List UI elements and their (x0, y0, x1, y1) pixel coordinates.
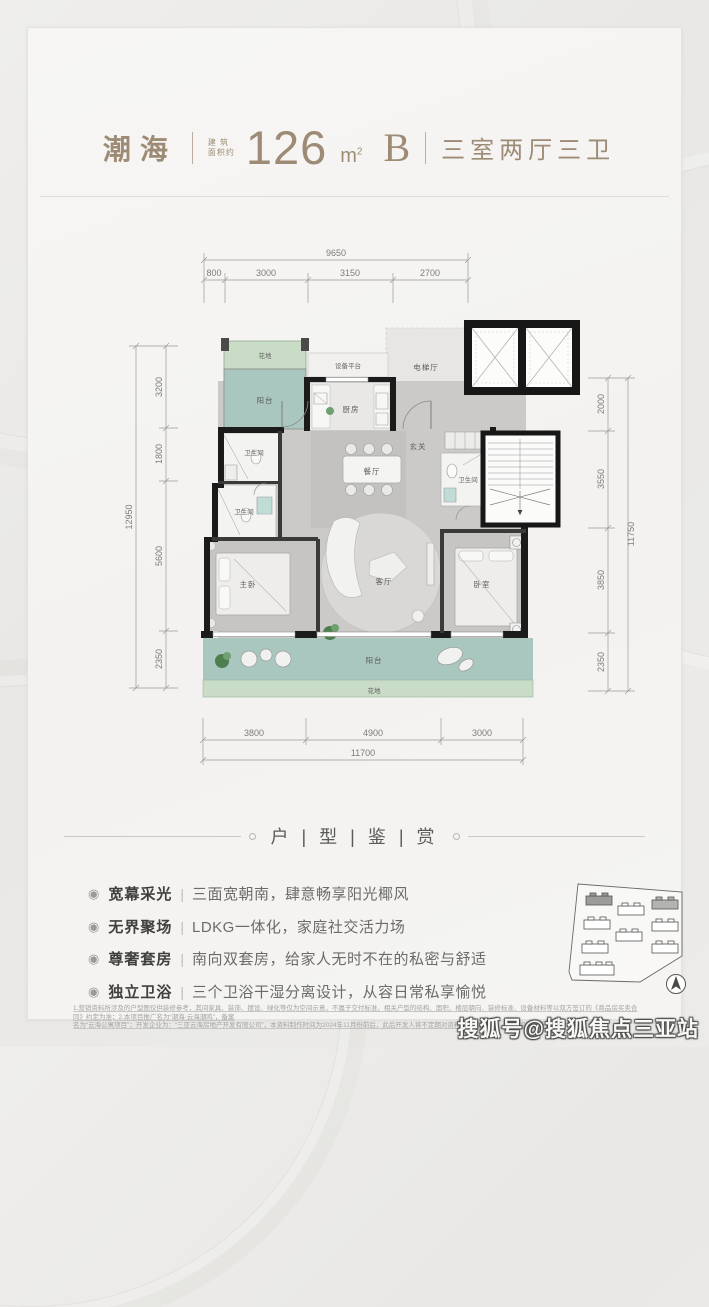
header-divider (425, 132, 426, 164)
stairwell (483, 433, 558, 525)
feature-separator: | (180, 886, 184, 902)
project-name: 潮海 (94, 128, 177, 168)
area-number: 126 (246, 120, 327, 175)
dim-left-seg4: 2350 (154, 649, 164, 669)
feature-label: 独立卫浴 (108, 981, 172, 1002)
feature-label: 尊奢套房 (108, 948, 172, 969)
room-label-kitchen: 厨房 (343, 404, 360, 414)
feature-desc: 南向双套房，给家人无时不在的私密与舒适 (192, 948, 487, 969)
feature-separator: | (180, 919, 184, 935)
feature-desc: LDKG一体化，家庭社交活力场 (192, 916, 405, 937)
room-label-equipment-platform: 设备平台 (335, 361, 361, 370)
bullet-icon: ◉ (88, 919, 99, 935)
section-ring-right (453, 833, 460, 840)
dim-right-seg2: 3550 (596, 469, 606, 489)
flyer-card: 潮海 建 筑 面积约 126 m2 B 三室两厅三卫 (27, 27, 682, 1020)
dim-right-seg1: 2000 (596, 394, 606, 414)
section-title: 户 | 型 | 鉴 | 赏 (264, 823, 444, 849)
bullet-icon: ◉ (88, 951, 99, 967)
toilet (447, 464, 457, 478)
area-prefix-line1: 建 筑 (208, 138, 235, 148)
area-unit: m2 (340, 145, 362, 175)
feature-desc: 三面宽朝南，肆意畅享阳光椰风 (192, 883, 409, 904)
dim-left-seg1: 3200 (154, 377, 164, 397)
room-label-bedroom2: 卧室 (474, 579, 491, 589)
room-label-bathroom1: 卫生间 (244, 448, 264, 457)
feature-list: ◉ 宽幕采光 | 三面宽朝南，肆意畅享阳光椰风 ◉ 无界聚场 | LDKG一体化… (88, 883, 553, 1013)
dim-bottom-seg2: 4900 (363, 728, 383, 738)
watermark: 搜狐号@搜狐焦点三亚站 (458, 1013, 699, 1043)
dim-top-seg4: 2700 (420, 268, 440, 278)
feature-row: ◉ 无界聚场 | LDKG一体化，家庭社交活力场 (88, 916, 553, 937)
area-prefix-line2: 面积约 (208, 148, 235, 158)
floor-plan: 花地 阳台 设备平台 厨房 电梯厅 卫生间 卫生间 卫生间 玄关 餐厅 主卧 客… (118, 243, 658, 773)
feature-separator: | (180, 951, 184, 967)
room-label-living: 客厅 (376, 576, 393, 586)
room-label-foyer: 玄关 (410, 441, 427, 451)
layout-description: 三室两厅三卫 (441, 130, 615, 165)
compass-icon (667, 975, 686, 994)
dim-top-total: 9650 (326, 248, 346, 258)
room-label-balcony-top: 阳台 (257, 395, 274, 405)
room-label-flowerbed-top: 花地 (259, 351, 273, 360)
dim-left-seg2: 1800 (154, 444, 164, 464)
site-plan (556, 874, 696, 999)
room-label-bathroom2: 卫生间 (234, 507, 254, 516)
area-unit-m: m (340, 145, 357, 167)
header-divider (192, 132, 193, 164)
feature-label: 无界聚场 (108, 916, 172, 937)
shower (444, 488, 456, 502)
area-unit-sup: 2 (357, 146, 363, 157)
tv-cabinet (427, 543, 434, 585)
room-label-balcony-bottom: 阳台 (366, 655, 383, 665)
section-line-right (468, 836, 645, 837)
feature-row: ◉ 尊奢套房 | 南向双套房，给家人无时不在的私密与舒适 (88, 948, 553, 969)
header: 潮海 建 筑 面积约 126 m2 B 三室两厅三卫 (28, 120, 681, 175)
room-label-dining: 餐厅 (364, 467, 381, 476)
feature-row: ◉ 宽幕采光 | 三面宽朝南，肆意畅享阳光椰风 (88, 883, 553, 904)
dim-right-seg4: 2350 (596, 652, 606, 672)
room-label-master-bedroom: 主卧 (240, 579, 257, 589)
dim-bottom-total: 11700 (351, 748, 375, 758)
shower (257, 497, 272, 514)
section-title-row: 户 | 型 | 鉴 | 赏 (64, 823, 645, 849)
dim-top-seg3: 3150 (340, 268, 360, 278)
feature-desc: 三个卫浴干湿分离设计，从容日常私享愉悦 (192, 981, 487, 1002)
elevator-block (464, 320, 580, 395)
bullet-icon: ◉ (88, 984, 99, 1000)
room-label-bathroom3: 卫生间 (458, 475, 478, 484)
room-label-elevator-hall: 电梯厅 (413, 362, 439, 372)
dim-top-seg1: 800 (206, 268, 221, 278)
dim-right-seg3: 3850 (596, 570, 606, 590)
section-ring-left (249, 833, 256, 840)
dim-left-total: 12950 (124, 504, 134, 529)
feature-row: ◉ 独立卫浴 | 三个卫浴干湿分离设计，从容日常私享愉悦 (88, 981, 553, 1002)
dim-right-total: 11750 (626, 522, 636, 546)
feature-separator: | (180, 984, 184, 1000)
section-line-left (64, 836, 241, 837)
header-rule (40, 196, 669, 197)
dim-top-seg2: 3000 (256, 268, 276, 278)
bullet-icon: ◉ (88, 886, 99, 902)
dim-bottom-seg1: 3800 (244, 728, 264, 738)
dim-left-seg3: 5600 (154, 546, 164, 566)
dim-bottom-seg3: 3000 (472, 728, 492, 738)
unit-type-code: B (383, 124, 410, 171)
area-prefix: 建 筑 面积约 (208, 138, 235, 158)
wardrobe (445, 432, 483, 449)
feature-label: 宽幕采光 (108, 883, 172, 904)
room-label-flowerbed-bottom: 花地 (368, 686, 382, 695)
